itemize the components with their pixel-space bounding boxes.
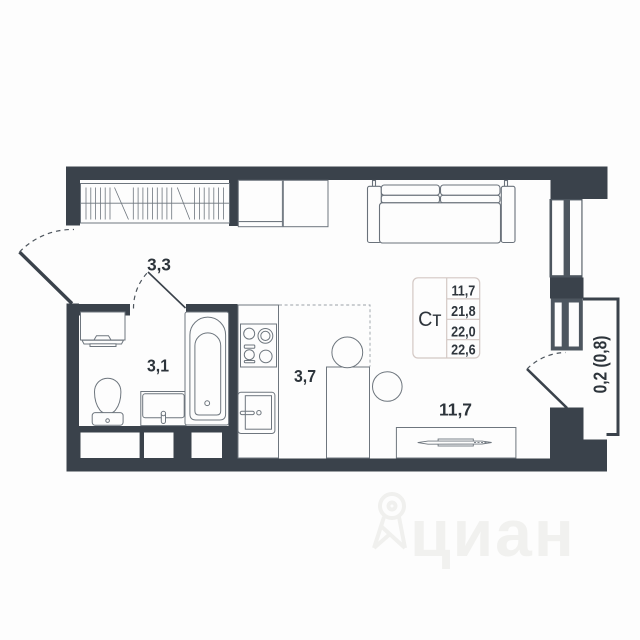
svg-text:22,6: 22,6 [451,341,476,358]
svg-text:11,7: 11,7 [439,399,472,419]
svg-text:3,3: 3,3 [147,254,171,275]
svg-text:11,7: 11,7 [451,282,475,299]
svg-text:циан: циан [410,496,576,570]
svg-text:22,0: 22,0 [451,322,476,339]
svg-text:Ст: Ст [418,307,442,331]
svg-text:3,1: 3,1 [147,356,169,376]
svg-text:3,7: 3,7 [294,366,316,386]
svg-text:0,2 (0,8): 0,2 (0,8) [590,336,611,394]
svg-text:21,8: 21,8 [451,302,476,319]
